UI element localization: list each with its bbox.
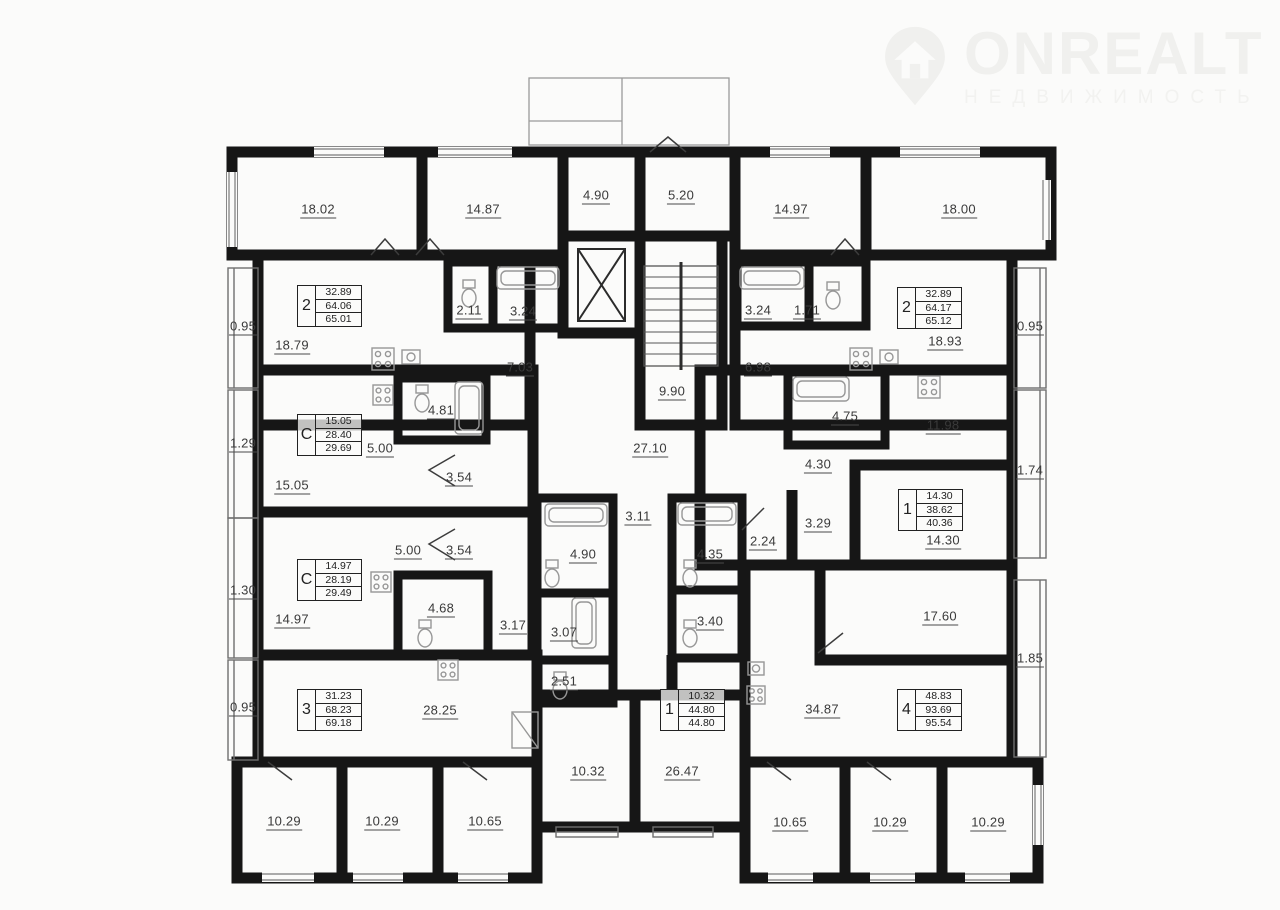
apartment-area-value: 32.89 xyxy=(916,288,961,302)
room-area-label: 1.71 xyxy=(793,303,821,320)
apartment-type: 4 xyxy=(898,690,916,730)
room-area-label: 5.00 xyxy=(394,543,422,560)
apartment-area-value: 40.36 xyxy=(917,517,962,530)
apartment-card: 331.2368.2369.18 xyxy=(297,689,362,731)
apartment-area-value: 68.23 xyxy=(316,704,361,718)
apartment-area-value: 14.30 xyxy=(917,490,962,504)
apartment-area-value: 44.80 xyxy=(679,717,724,730)
apartment-type: С xyxy=(298,560,316,600)
room-area-label: 10.65 xyxy=(772,815,808,832)
apartment-type: 3 xyxy=(298,690,316,730)
apartment-area-value: 64.06 xyxy=(316,300,361,314)
apartment-area-value: 15.05 xyxy=(316,415,361,429)
room-area-label: 14.87 xyxy=(465,202,501,219)
room-area-label: 27.10 xyxy=(632,441,668,458)
apartment-area-value: 65.01 xyxy=(316,313,361,326)
room-area-label: 1.29 xyxy=(229,436,257,453)
room-area-label: 10.29 xyxy=(364,814,400,831)
floorplan-page: ONREALT НЕДВИЖИМОСТЬ xyxy=(0,0,1280,910)
room-area-label: 26.47 xyxy=(664,764,700,781)
room-area-label: 34.87 xyxy=(804,702,840,719)
room-area-label: 2.24 xyxy=(749,534,777,551)
room-area-label: 10.29 xyxy=(266,814,302,831)
apartment-card: С14.9728.1929.49 xyxy=(297,559,362,601)
room-area-label: 3.11 xyxy=(624,509,651,526)
room-area-label: 18.79 xyxy=(274,338,310,355)
apartment-area-value: 93.69 xyxy=(916,704,961,718)
room-area-label: 1.74 xyxy=(1016,463,1044,480)
apartment-area-value: 64.17 xyxy=(916,302,961,316)
room-area-label: 14.97 xyxy=(773,202,809,219)
apartment-area-value: 95.54 xyxy=(916,717,961,730)
room-area-label: 18.93 xyxy=(927,334,963,351)
room-area-label: 0.95 xyxy=(1016,319,1044,336)
apartment-card: 110.3244.8044.80 xyxy=(660,689,725,731)
apartment-area-value: 14.97 xyxy=(316,560,361,574)
apartment-area-value: 65.12 xyxy=(916,315,961,328)
room-area-label: 28.25 xyxy=(422,703,458,720)
room-area-label: 2.51 xyxy=(550,674,578,691)
apartment-area-value: 28.40 xyxy=(316,429,361,443)
apartment-area-value: 38.62 xyxy=(917,504,962,518)
room-area-label: 3.54 xyxy=(445,470,473,487)
room-area-label: 4.35 xyxy=(696,547,724,564)
room-area-label: 5.00 xyxy=(366,441,394,458)
apartment-type: 1 xyxy=(661,690,679,730)
apartment-card: С15.0528.4029.69 xyxy=(297,414,362,456)
room-area-label: 3.40 xyxy=(696,614,724,631)
room-area-label: 11.98 xyxy=(926,418,961,435)
apartment-area-value: 69.18 xyxy=(316,717,361,730)
apartment-type: С xyxy=(298,415,316,455)
labels-layer: 18.0214.874.905.2014.9718.000.951.291.30… xyxy=(0,0,1280,910)
room-area-label: 1.30 xyxy=(229,583,257,600)
room-area-label: 14.97 xyxy=(274,612,310,629)
apartment-area-value: 29.69 xyxy=(316,442,361,455)
apartment-area-value: 10.32 xyxy=(679,690,724,704)
room-area-label: 3.24 xyxy=(509,304,537,321)
apartment-area-value: 48.83 xyxy=(916,690,961,704)
room-area-label: 10.29 xyxy=(970,815,1006,832)
apartment-area-value: 29.49 xyxy=(316,587,361,600)
room-area-label: 4.68 xyxy=(427,601,455,618)
apartment-type: 2 xyxy=(898,288,916,328)
room-area-label: 4.30 xyxy=(804,457,832,474)
room-area-label: 4.90 xyxy=(569,547,597,564)
room-area-label: 3.29 xyxy=(804,516,832,533)
room-area-label: 1.85 xyxy=(1016,651,1044,668)
apartment-card: 232.8964.1765.12 xyxy=(897,287,962,329)
room-area-label: 3.17 xyxy=(499,618,527,635)
room-area-label: 4.90 xyxy=(582,188,610,205)
room-area-label: 2.11 xyxy=(455,303,482,320)
room-area-label: 10.65 xyxy=(467,814,503,831)
apartment-card: 448.8393.6995.54 xyxy=(897,689,962,731)
room-area-label: 9.90 xyxy=(658,384,686,401)
apartment-card: 232.8964.0665.01 xyxy=(297,285,362,327)
room-area-label: 15.05 xyxy=(274,478,310,495)
apartment-area-value: 32.89 xyxy=(316,286,361,300)
room-area-label: 3.54 xyxy=(445,543,473,560)
room-area-label: 6.98 xyxy=(744,360,772,377)
room-area-label: 10.29 xyxy=(872,815,908,832)
room-area-label: 5.20 xyxy=(667,188,695,205)
room-area-label: 18.00 xyxy=(941,202,977,219)
room-area-label: 17.60 xyxy=(922,609,958,626)
apartment-type: 1 xyxy=(899,490,917,530)
apartment-area-value: 28.19 xyxy=(316,574,361,588)
apartment-area-value: 31.23 xyxy=(316,690,361,704)
apartment-type: 2 xyxy=(298,286,316,326)
apartment-card: 114.3038.6240.36 xyxy=(898,489,963,531)
room-area-label: 4.81 xyxy=(427,403,455,420)
room-area-label: 0.95 xyxy=(229,700,257,717)
room-area-label: 0.95 xyxy=(229,319,257,336)
room-area-label: 3.24 xyxy=(744,303,772,320)
room-area-label: 3.07 xyxy=(550,625,578,642)
room-area-label: 7.03 xyxy=(506,360,534,377)
apartment-area-value: 44.80 xyxy=(679,704,724,718)
room-area-label: 18.02 xyxy=(300,202,336,219)
room-area-label: 10.32 xyxy=(570,764,606,781)
room-area-label: 4.75 xyxy=(831,409,859,426)
room-area-label: 14.30 xyxy=(925,533,961,550)
